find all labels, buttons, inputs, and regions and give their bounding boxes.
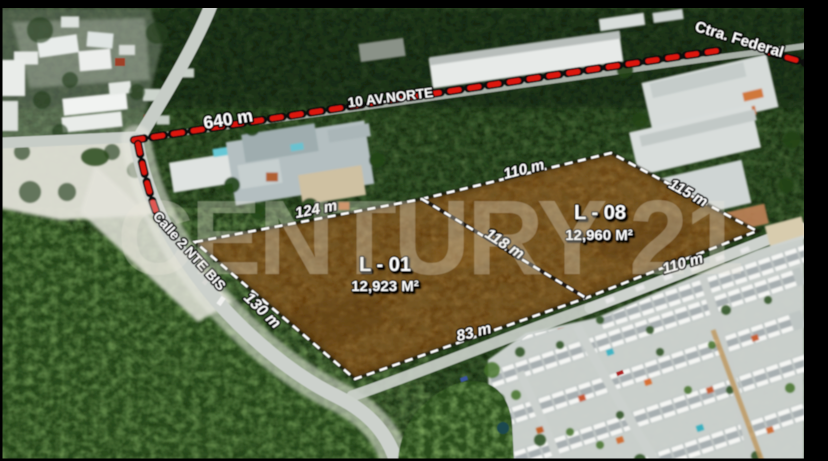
svg-text:CENTURY 21: CENTURY 21 <box>117 179 741 297</box>
